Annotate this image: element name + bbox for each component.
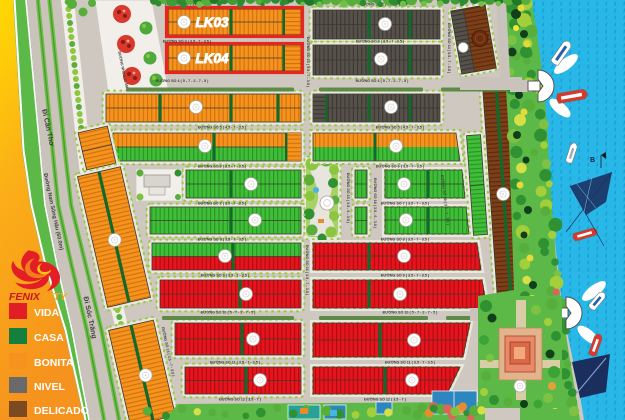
svg-text:BONITA: BONITA xyxy=(34,357,74,369)
svg-text:ĐƯỜNG SỐ 9 ( 3.5 - 7 - 3.5 ): ĐƯỜNG SỐ 9 ( 3.5 - 7 - 3.5 ) xyxy=(201,272,250,277)
svg-text:ĐƯỜNG SỐ 8 ( 3.5 - 7 - 3.5 ): ĐƯỜNG SỐ 8 ( 3.5 - 7 - 3.5 ) xyxy=(381,236,430,241)
svg-text:CASA: CASA xyxy=(34,332,64,344)
svg-text:ĐƯỜNG SỐ 7 ( 3.5 - 7 - 3.5 ): ĐƯỜNG SỐ 7 ( 3.5 - 7 - 3.5 ) xyxy=(198,200,247,205)
svg-text:ĐƯỜNG SỐ 11 ( 3.5 - 7 - 3.5 ): ĐƯỜNG SỐ 11 ( 3.5 - 7 - 3.5 ) xyxy=(210,359,261,364)
svg-text:ĐƯỜNG SỐ 14 ( 3.5 - 7 - 3.5 ): ĐƯỜNG SỐ 14 ( 3.5 - 7 - 3.5 ) xyxy=(447,23,452,74)
svg-text:ĐƯỜNG SỐ 13 ( 3.5 - 7 - 3.5 ): ĐƯỜNG SỐ 13 ( 3.5 - 7 - 3.5 ) xyxy=(306,37,311,88)
svg-text:ĐƯỜNG SỐ 16 ( 3.5 - 7 - 3.5 ): ĐƯỜNG SỐ 16 ( 3.5 - 7 - 3.5 ) xyxy=(305,245,310,296)
svg-text:FENIX CITY: FENIX CITY xyxy=(9,291,68,303)
svg-text:ĐƯỜNG SỐ 9 ( 3.5 - 7 - 3.5 ): ĐƯỜNG SỐ 9 ( 3.5 - 7 - 3.5 ) xyxy=(381,272,430,277)
svg-text:B: B xyxy=(604,364,608,370)
svg-text:ĐƯỜNG SỐ 12 ( 3.5 - 7 ): ĐƯỜNG SỐ 12 ( 3.5 - 7 ) xyxy=(364,396,407,401)
svg-text:B: B xyxy=(590,157,595,164)
svg-text:ĐƯỜNG SỐ 4 ( 5 - 7 - 2 - 7 - 5: ĐƯỜNG SỐ 4 ( 5 - 7 - 2 - 7 - 5 ) xyxy=(156,78,209,83)
svg-text:ĐƯỜNG SỐ 10 ( 5 - 7 - 2 - 7 -: ĐƯỜNG SỐ 10 ( 5 - 7 - 2 - 7 - 5 ) xyxy=(383,309,439,314)
svg-text:ĐƯỜNG SỐ 6 ( 3.5 - 7 - 3.5 ): ĐƯỜNG SỐ 6 ( 3.5 - 7 - 3.5 ) xyxy=(198,163,247,168)
svg-text:VIDA: VIDA xyxy=(34,307,60,319)
svg-text:ĐƯỜNG SỐ 7 ( 3.5 - 7 - 3.5 ): ĐƯỜNG SỐ 7 ( 3.5 - 7 - 3.5 ) xyxy=(381,200,430,205)
svg-text:LK03: LK03 xyxy=(195,15,229,30)
svg-text:ĐƯỜNG SỐ 10 ( 5 - 7 - 2 - 7 -: ĐƯỜNG SỐ 10 ( 5 - 7 - 2 - 7 - 5 ) xyxy=(201,309,257,314)
svg-text:ĐƯỜNG SỐ 4 ( 5 - 7 - 2 - 7 - 5: ĐƯỜNG SỐ 4 ( 5 - 7 - 2 - 7 - 5 ) xyxy=(356,78,409,83)
svg-text:ĐƯỜNG SỐ 15 ( 3.5 - 6 - 3.5 ): ĐƯỜNG SỐ 15 ( 3.5 - 6 - 3.5 ) xyxy=(346,173,351,224)
svg-text:ĐƯỜNG SỐ 5 ( 4.5 - 7 - 3.5 ): ĐƯỜNG SỐ 5 ( 4.5 - 7 - 3.5 ) xyxy=(198,124,247,129)
svg-text:ĐƯỜNG SỐ 5 ( 4.5 - 7 - 3.5 ): ĐƯỜNG SỐ 5 ( 4.5 - 7 - 3.5 ) xyxy=(376,124,425,129)
svg-text:LK04: LK04 xyxy=(195,51,229,66)
svg-text:ĐƯỜNG SỐ 11 ( 3.5 - 7 - 3.5 ): ĐƯỜNG SỐ 11 ( 3.5 - 7 - 3.5 ) xyxy=(385,359,436,364)
svg-text:ĐƯỜNG SỐ 18 ( 3.5 - 6 - 3.5 ): ĐƯỜNG SỐ 18 ( 3.5 - 6 - 3.5 ) xyxy=(373,178,378,229)
svg-text:ĐƯỜNG SỐ 8 ( 3.5 - 7 - 3.5 ): ĐƯỜNG SỐ 8 ( 3.5 - 7 - 3.5 ) xyxy=(198,236,247,241)
svg-text:ĐƯỜNG SỐ 12 ( 3.5 - 7 ): ĐƯỜNG SỐ 12 ( 3.5 - 7 ) xyxy=(219,396,262,401)
svg-text:DELICADO: DELICADO xyxy=(34,405,89,417)
svg-text:ĐƯỜNG SỐ 3 ( 3.5 - 7 - 3.5 ): ĐƯỜNG SỐ 3 ( 3.5 - 7 - 3.5 ) xyxy=(356,38,405,43)
svg-text:ĐƯỜNG SỐ 3 ( 3.5 - 7 - 3.5 ): ĐƯỜNG SỐ 3 ( 3.5 - 7 - 3.5 ) xyxy=(163,38,212,43)
svg-text:ĐƯỜNG SỐ 6 ( 3.5 - 7 - 3.5 ): ĐƯỜNG SỐ 6 ( 3.5 - 7 - 3.5 ) xyxy=(376,163,425,168)
svg-text:NIVEL: NIVEL xyxy=(34,381,66,393)
